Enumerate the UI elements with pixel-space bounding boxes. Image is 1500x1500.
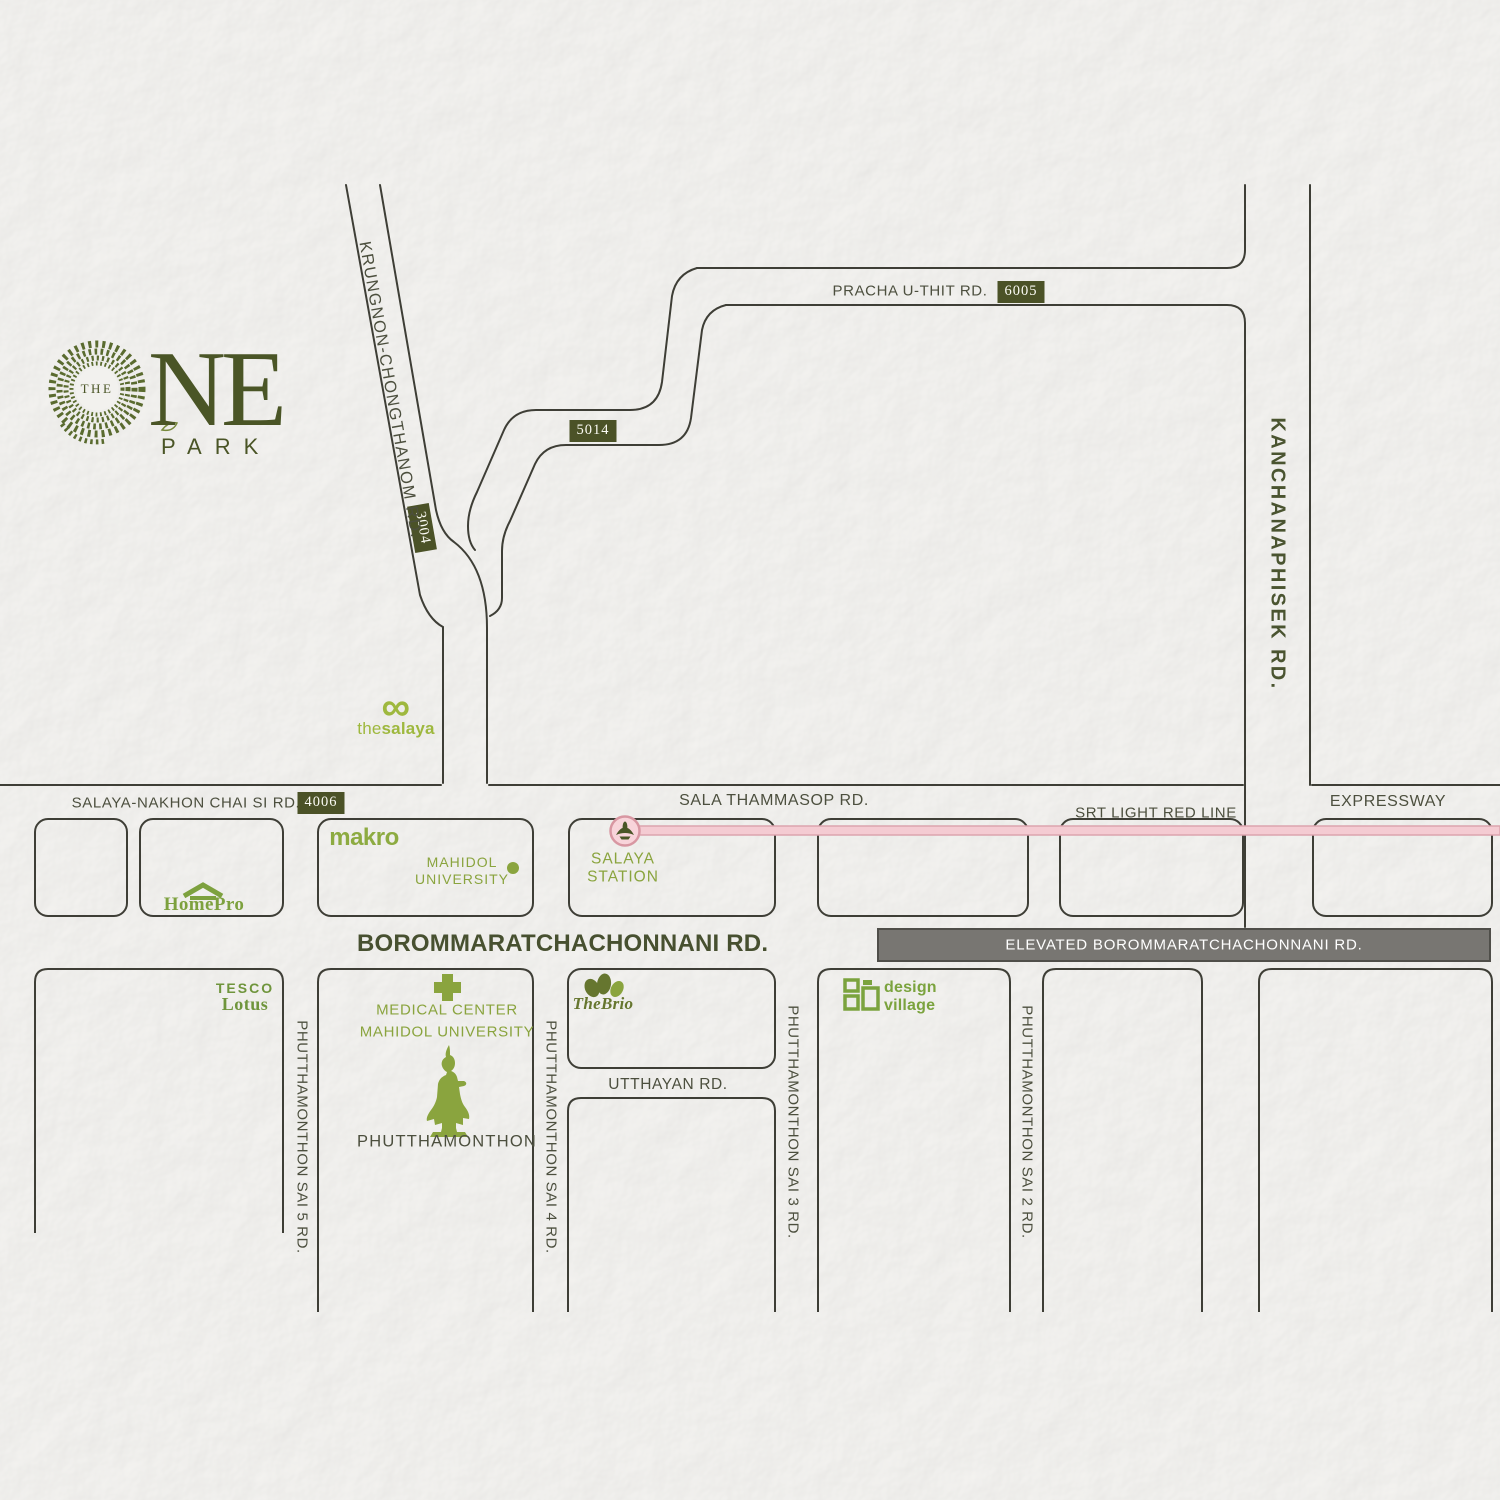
station-marker-icon [611, 817, 640, 846]
map-graphics [0, 0, 1500, 1500]
label-phutthamonthon-sai-4-rd: PHUTTHAMONTHON SAI 4 RD. [543, 1020, 560, 1254]
label-salaya-nakhon-chai-si-rd: SALAYA-NAKHON CHAI SI RD. [72, 795, 301, 812]
makro-logo: makro [329, 824, 399, 852]
the-salaya-label: the [357, 719, 381, 738]
block [35, 819, 127, 916]
block [568, 1098, 775, 1312]
srt-red-line [625, 826, 1500, 835]
logo-ne-text: NE [148, 341, 282, 438]
label-sala-thammasop-rd: SALA THAMMASOP RD. [679, 792, 869, 810]
label-kanchanaphisek-rd: KANCHANAPHISEK RD. [1266, 417, 1289, 690]
route-badge-6005: 6005 [998, 281, 1045, 303]
design-village-grid-icon [845, 980, 878, 1009]
medical-center-label: MEDICAL CENTER MAHIDOL UNIVERSITY [360, 999, 535, 1043]
label-phutthamonthon-sai-3-rd: PHUTTHAMONTHON SAI 3 RD. [785, 1005, 802, 1239]
buddha-statue-icon [427, 1045, 470, 1137]
label-phutthamonthon-sai-5-rd: PHUTTHAMONTHON SAI 5 RD. [294, 1020, 311, 1254]
the-salaya-logo: ∞ thesalaya [357, 695, 434, 737]
label-utthayan-rd: UTTHAYAN RD. [608, 1076, 727, 1094]
block [818, 969, 1010, 1312]
block [1259, 969, 1492, 1312]
infinity-icon: ∞ [357, 695, 434, 720]
route-badge-5014: 5014 [570, 420, 617, 442]
map-canvas: PRACHA U-THIT RD. 6005 5014 3004 KRUNGNO… [0, 0, 1500, 1500]
route-badge-4006: 4006 [298, 792, 345, 814]
label-pracha-u-thit-rd: PRACHA U-THIT RD. [833, 283, 988, 300]
tesco-lotus-logo: TESCO Lotus [216, 981, 274, 1013]
the-brio-logo: TheBrio [573, 994, 634, 1014]
label-srt-light-red-line: SRT LIGHT RED LINE [1075, 805, 1237, 822]
label-phutthamonthon-sai-2-rd: PHUTTHAMONTHON SAI 2 RD. [1019, 1005, 1036, 1239]
label-borommaratchachonnani-rd: BOROMMARATCHACHONNANI RD. [357, 930, 768, 958]
mahidol-university-label: MAHIDOL UNIVERSITY [415, 854, 509, 888]
logo-the-text: THE [81, 381, 114, 397]
label-expressway: EXPRESSWAY [1330, 793, 1446, 811]
homepro-logo: HomePro [164, 894, 245, 916]
route-5014-road [468, 268, 697, 550]
design-village-logo: design village [884, 979, 937, 1015]
phutthamonthon-label: PHUTTHAMONTHON [357, 1133, 537, 1152]
logo-park-text: PARK [161, 434, 271, 460]
city-blocks [35, 819, 1492, 1312]
label-elevated-borommaratchachonnani-rd: ELEVATED BOROMMARATCHACHONNANI RD. [1005, 937, 1362, 954]
block [1043, 969, 1202, 1312]
salaya-station-label: SALAYA STATION [587, 851, 659, 888]
pracha-u-thit-road [697, 185, 1245, 268]
medical-cross-icon [434, 974, 461, 1001]
route-5014-road [490, 305, 726, 616]
